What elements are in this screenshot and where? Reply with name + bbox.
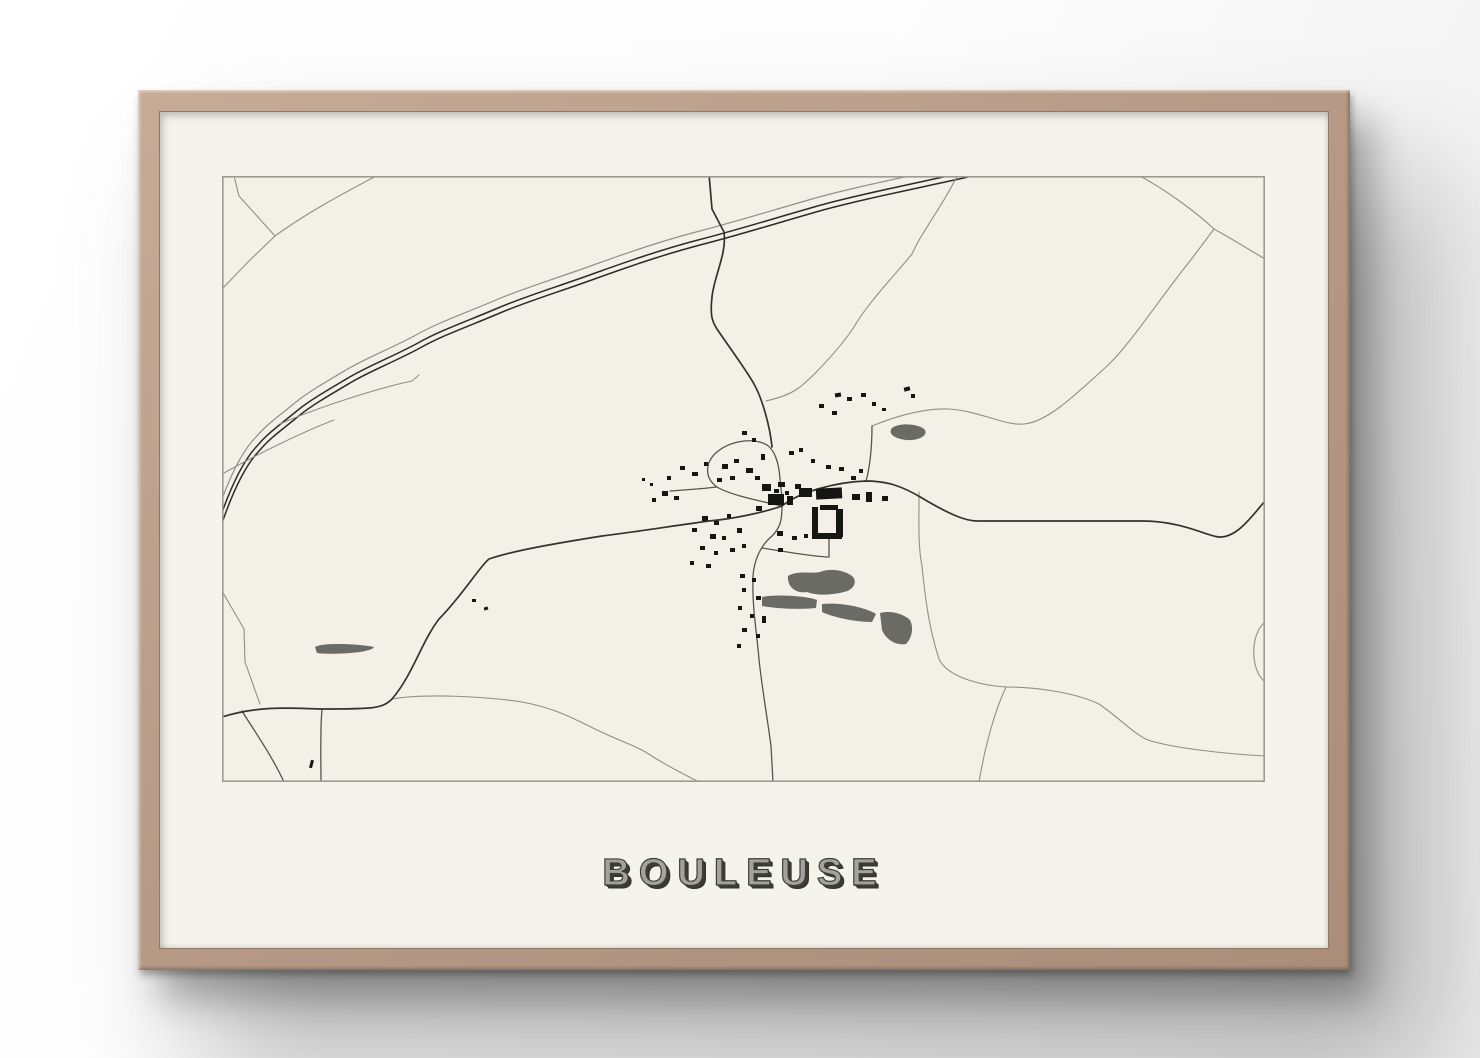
areas-group: [315, 424, 926, 653]
picture-frame: BOULEUSE: [138, 90, 1350, 970]
poster-title: BOULEUSE: [160, 852, 1328, 895]
dark-roads-group: [222, 176, 1265, 717]
map-border: [223, 177, 1264, 781]
poster-sheet: BOULEUSE: [160, 112, 1328, 948]
railway-group: [222, 176, 968, 529]
map-graphic: [222, 176, 1265, 782]
thin-roads-group: [222, 176, 1265, 782]
wall: { "poster": { "title": "BOULEUSE" }, "ma…: [0, 0, 1480, 1058]
map-paper: [222, 176, 1265, 782]
